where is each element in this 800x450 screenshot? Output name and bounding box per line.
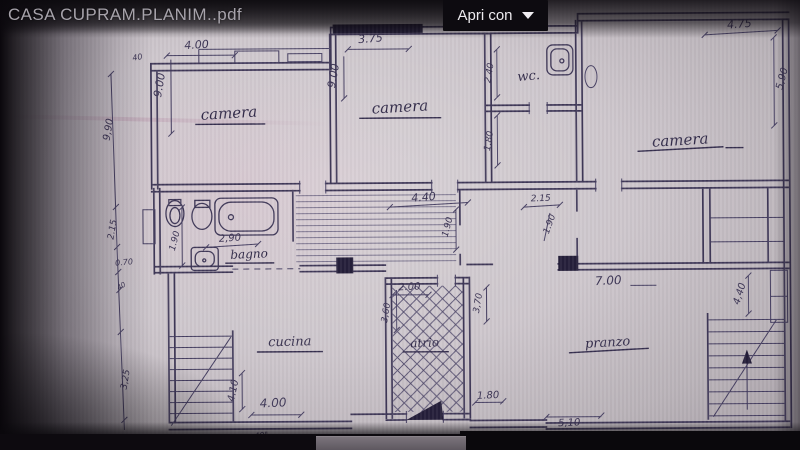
monitor-stand — [316, 436, 466, 450]
screen-bottom-bezel-right — [460, 431, 800, 450]
chevron-down-icon — [522, 12, 534, 19]
open-with-label: Apri con — [457, 7, 512, 24]
filename-title: CASA CUPRAM.PLANIM..pdf — [8, 5, 242, 25]
open-with-button[interactable]: Apri con — [443, 0, 548, 31]
screen-photo: cameracamerawc.camerabagnoatriocucinapra… — [0, 0, 800, 450]
